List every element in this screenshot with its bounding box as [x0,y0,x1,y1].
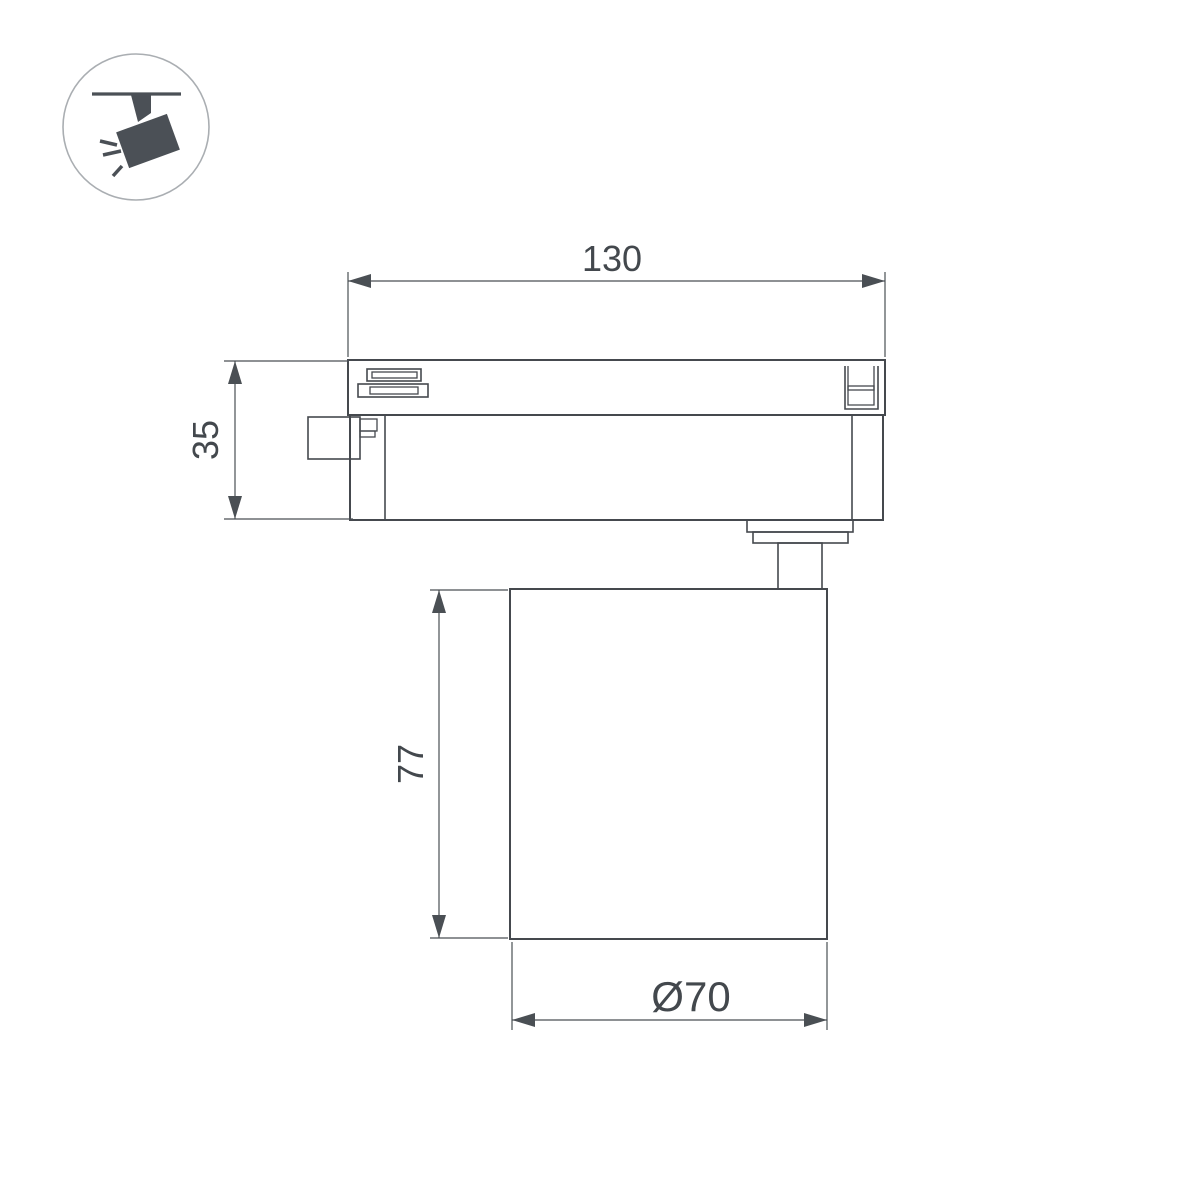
dimension-adapter-height-label: 35 [185,420,226,460]
technical-drawing-page: 130 35 77 Ø70 [0,0,1200,1200]
side-switch-tab [308,417,360,459]
clamp-channel [845,366,878,409]
pivot-joint [747,520,853,589]
adapter-housing [350,415,883,520]
latch-detail [360,419,377,437]
fixture-side-view [308,360,885,939]
dimension-adapter-height: 35 [185,361,353,519]
track-spotlight-icon [63,54,209,200]
dimension-lamp-diameter: Ø70 [512,942,827,1030]
dimension-lamp-height-label: 77 [390,744,431,784]
lamp-body [510,589,827,939]
dimension-lamp-diameter-label: Ø70 [651,973,730,1020]
dimension-lamp-height: 77 [390,590,508,938]
contact-strips [358,369,428,397]
track-light-dimension-drawing: 130 35 77 Ø70 [0,0,1200,1200]
dimension-width: 130 [348,238,885,357]
dimension-width-label: 130 [582,238,642,279]
